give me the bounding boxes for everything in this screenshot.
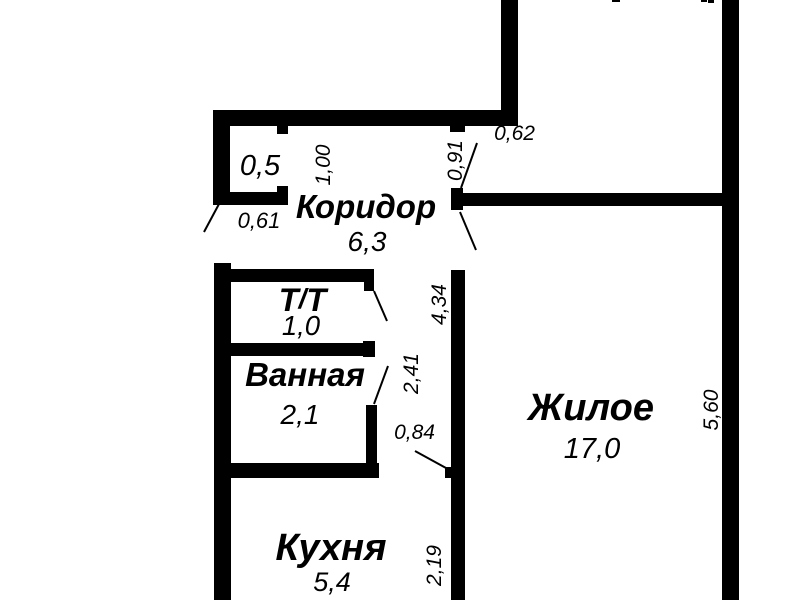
svg-text:17,0: 17,0 (564, 433, 620, 465)
svg-text:Жилое: Жилое (526, 387, 654, 429)
svg-text:1,00: 1,00 (312, 144, 335, 185)
svg-text:0,5: 0,5 (240, 150, 281, 182)
svg-text:4,34: 4,34 (428, 284, 451, 325)
svg-text:6,3: 6,3 (348, 226, 387, 257)
svg-text:2,19: 2,19 (423, 545, 446, 587)
svg-text:5,60: 5,60 (700, 389, 723, 430)
svg-text:Кухня: Кухня (276, 527, 387, 569)
svg-text:0,62: 0,62 (494, 122, 535, 145)
svg-text:0,61: 0,61 (238, 208, 281, 233)
svg-text:0,84: 0,84 (394, 421, 435, 444)
svg-text:5,4: 5,4 (313, 567, 351, 597)
svg-text:0,91: 0,91 (444, 140, 467, 181)
svg-text:2,41: 2,41 (400, 353, 423, 395)
svg-text:2,1: 2,1 (280, 399, 320, 430)
svg-text:Коридор: Коридор (296, 188, 436, 225)
svg-text:1,0: 1,0 (282, 310, 321, 341)
svg-text:Ванная: Ванная (245, 356, 365, 393)
